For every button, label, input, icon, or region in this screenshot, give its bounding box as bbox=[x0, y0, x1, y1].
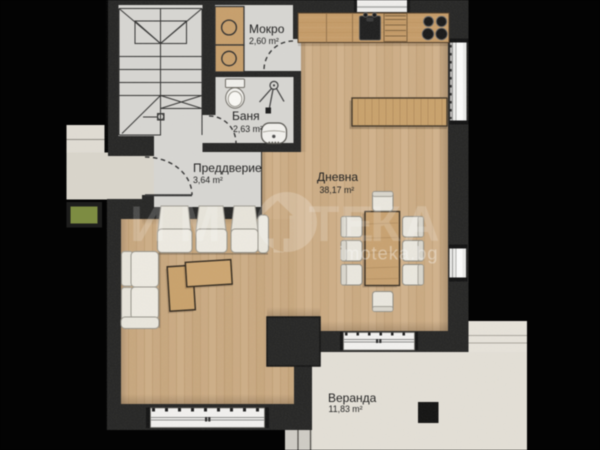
svg-text:imoteka.bg: imoteka.bg bbox=[339, 243, 439, 264]
svg-text:И: И bbox=[130, 196, 166, 252]
svg-text:М: М bbox=[179, 196, 221, 252]
